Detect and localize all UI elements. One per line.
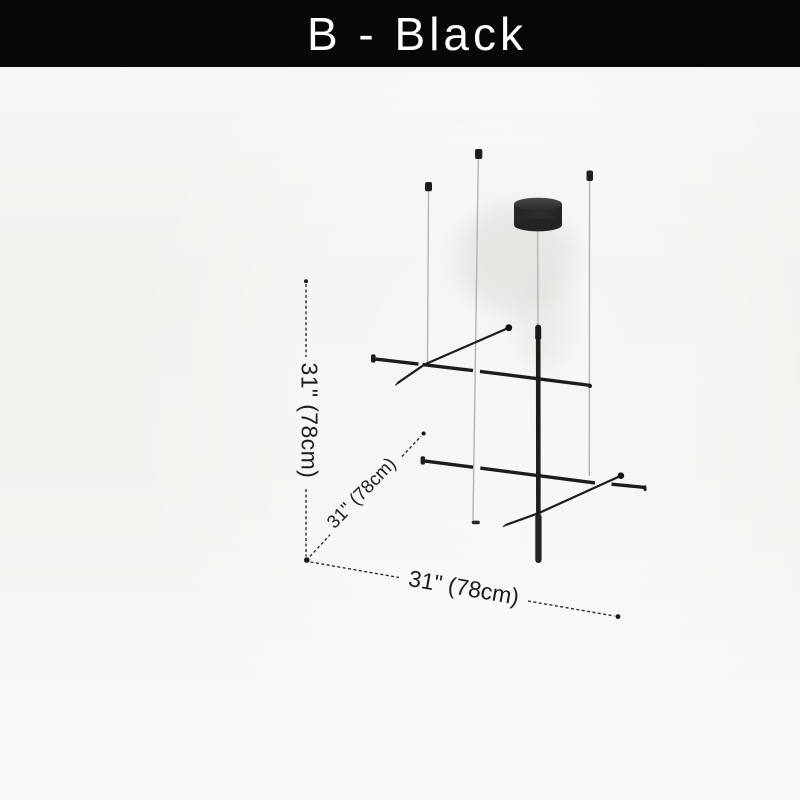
svg-text:31" (78cm): 31" (78cm): [296, 363, 322, 479]
